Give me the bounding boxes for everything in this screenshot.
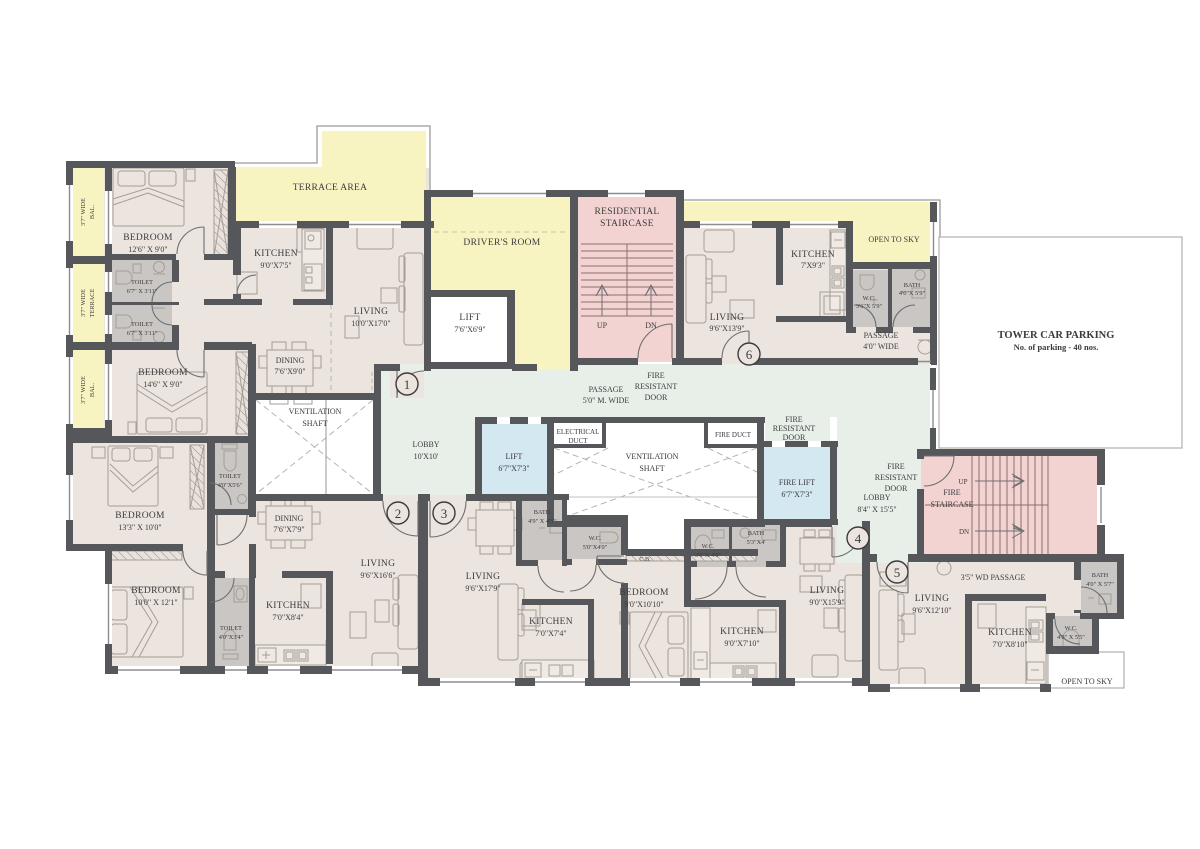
svg-text:1: 1: [404, 377, 411, 392]
svg-text:12'6" X 9'0": 12'6" X 9'0": [128, 245, 167, 254]
svg-text:9'0"X7'10": 9'0"X7'10": [724, 639, 759, 648]
svg-text:W.C.: W.C.: [589, 535, 602, 542]
svg-text:3'7" WIDE: 3'7" WIDE: [80, 289, 87, 317]
svg-text:BATH: BATH: [534, 509, 551, 516]
svg-text:9'6"X17'9": 9'6"X17'9": [465, 584, 500, 593]
svg-text:BATH: BATH: [1092, 572, 1109, 579]
svg-text:DOOR: DOOR: [885, 484, 908, 493]
svg-text:4'9" X 4'5": 4'9" X 4'5": [528, 518, 556, 525]
svg-text:4'0" X 5'5": 4'0" X 5'5": [1057, 634, 1085, 641]
svg-text:LOBBY: LOBBY: [863, 493, 890, 502]
svg-text:SHAFT: SHAFT: [302, 419, 327, 428]
svg-text:9'6"X16'6": 9'6"X16'6": [360, 571, 395, 580]
svg-text:9'6"X12'10": 9'6"X12'10": [912, 606, 951, 615]
svg-text:BAL.: BAL.: [89, 204, 96, 219]
svg-text:BEDROOM: BEDROOM: [115, 511, 165, 521]
svg-text:KITCHEN: KITCHEN: [720, 627, 764, 637]
svg-text:SHAFT: SHAFT: [639, 464, 664, 473]
svg-text:UP: UP: [959, 478, 968, 486]
svg-text:DUCT: DUCT: [568, 437, 588, 445]
svg-text:W.C.: W.C.: [702, 543, 715, 550]
svg-text:KITCHEN: KITCHEN: [266, 601, 310, 611]
svg-text:C.B.: C.B.: [639, 556, 651, 563]
svg-text:DRIVER'S ROOM: DRIVER'S ROOM: [463, 238, 540, 248]
svg-text:No. of parking - 40 nos.: No. of parking - 40 nos.: [1014, 342, 1099, 352]
svg-text:7'0"X8'10": 7'0"X8'10": [992, 640, 1027, 649]
svg-text:TOILET: TOILET: [131, 279, 153, 286]
svg-text:5'0"X4'0": 5'0"X4'0": [583, 544, 608, 551]
svg-text:W.C.: W.C.: [863, 295, 876, 302]
svg-text:2: 2: [395, 506, 402, 521]
svg-text:LIVING: LIVING: [354, 307, 389, 317]
svg-text:DINING: DINING: [275, 514, 304, 523]
svg-text:7'6"X9'0": 7'6"X9'0": [274, 367, 305, 376]
svg-text:6'7" X 3'11": 6'7" X 3'11": [127, 288, 158, 295]
svg-text:3'6"X 4'0": 3'6"X 4'0": [695, 552, 722, 559]
svg-text:7'6"X6'9": 7'6"X6'9": [454, 325, 485, 334]
svg-text:LIVING: LIVING: [915, 594, 950, 604]
svg-text:DOOR: DOOR: [783, 433, 806, 442]
svg-text:6: 6: [746, 347, 753, 362]
svg-text:9'0"X15'9": 9'0"X15'9": [809, 598, 844, 607]
svg-text:LIVING: LIVING: [466, 572, 501, 582]
svg-text:RESISTANT: RESISTANT: [773, 424, 816, 433]
svg-text:DN: DN: [959, 528, 969, 536]
svg-text:VENTILATION: VENTILATION: [626, 452, 679, 461]
svg-text:TERRACE: TERRACE: [89, 289, 96, 318]
svg-text:BEDROOM: BEDROOM: [138, 368, 188, 378]
svg-text:5'3"X4': 5'3"X4': [747, 539, 766, 546]
svg-text:10'0"X17'0": 10'0"X17'0": [351, 319, 390, 328]
svg-text:4'0" WIDE: 4'0" WIDE: [863, 342, 899, 351]
svg-text:9'0"X7'5": 9'0"X7'5": [260, 261, 291, 270]
svg-text:3'6"X 5'9": 3'6"X 5'9": [856, 303, 883, 310]
svg-text:LIVING: LIVING: [710, 313, 745, 323]
svg-text:4'0"X5'6": 4'0"X5'6": [218, 482, 243, 489]
svg-text:BEDROOM: BEDROOM: [123, 233, 173, 243]
svg-text:8'4" X 15'5": 8'4" X 15'5": [857, 505, 896, 514]
svg-text:6'7"X7'3": 6'7"X7'3": [498, 464, 529, 473]
svg-text:4'0"X 5'9": 4'0"X 5'9": [899, 290, 926, 297]
svg-text:10'0" X 12'1": 10'0" X 12'1": [134, 598, 177, 607]
svg-text:BATH: BATH: [904, 282, 921, 289]
svg-text:3'7" WIDE: 3'7" WIDE: [80, 376, 87, 404]
svg-text:4: 4: [855, 531, 862, 546]
svg-text:OPEN TO SKY: OPEN TO SKY: [868, 235, 919, 244]
svg-text:FIRE DUCT: FIRE DUCT: [715, 431, 752, 439]
svg-text:KITCHEN: KITCHEN: [988, 628, 1032, 638]
svg-text:KITCHEN: KITCHEN: [791, 250, 835, 260]
svg-text:LIFT: LIFT: [459, 313, 480, 323]
svg-text:RESISTANT: RESISTANT: [875, 473, 918, 482]
svg-text:UP: UP: [597, 321, 608, 330]
svg-text:DINING: DINING: [276, 356, 305, 365]
svg-text:DOOR: DOOR: [645, 393, 668, 402]
svg-text:TOILET: TOILET: [220, 625, 242, 632]
svg-text:STAIRCASE: STAIRCASE: [600, 219, 654, 229]
svg-text:BATH: BATH: [748, 530, 765, 537]
svg-text:PASSAGE: PASSAGE: [864, 331, 899, 340]
svg-text:KITCHEN: KITCHEN: [529, 617, 573, 627]
svg-text:FIRE: FIRE: [887, 462, 904, 471]
svg-text:6'7" X 3'11": 6'7" X 3'11": [127, 330, 158, 337]
svg-text:LIFT: LIFT: [506, 452, 523, 461]
svg-text:3: 3: [441, 506, 448, 521]
svg-text:10'X10': 10'X10': [414, 452, 439, 461]
svg-text:RESISTANT: RESISTANT: [635, 382, 678, 391]
svg-text:13'3" X 10'0": 13'3" X 10'0": [118, 523, 161, 532]
svg-text:3'5" WD PASSAGE: 3'5" WD PASSAGE: [961, 573, 1026, 582]
svg-text:BEDROOM: BEDROOM: [619, 588, 669, 598]
svg-text:5'0" M. WIDE: 5'0" M. WIDE: [583, 396, 630, 405]
svg-text:FIRE LIFT: FIRE LIFT: [779, 478, 815, 487]
svg-text:TOILET: TOILET: [219, 473, 241, 480]
svg-text:DN: DN: [645, 321, 657, 330]
svg-text:PASSAGE: PASSAGE: [589, 385, 624, 394]
svg-text:5: 5: [894, 565, 901, 580]
svg-text:4'0" X 5'7": 4'0" X 5'7": [1086, 581, 1114, 588]
svg-text:OPEN TO SKY: OPEN TO SKY: [1061, 677, 1112, 686]
svg-text:4'0"X3'4": 4'0"X3'4": [219, 634, 244, 641]
svg-text:7'6"X7'9": 7'6"X7'9": [273, 525, 304, 534]
svg-text:BAL.: BAL.: [89, 382, 96, 397]
svg-text:7'X9'3": 7'X9'3": [801, 261, 825, 270]
svg-text:LIVING: LIVING: [361, 559, 396, 569]
svg-text:FIRE: FIRE: [785, 415, 802, 424]
svg-text:FIRE: FIRE: [647, 371, 664, 380]
svg-text:3'7" WIDE: 3'7" WIDE: [80, 198, 87, 226]
svg-text:9'6"X13'9": 9'6"X13'9": [709, 324, 744, 333]
svg-text:LIVING: LIVING: [810, 586, 845, 596]
svg-text:TOWER CAR PARKING: TOWER CAR PARKING: [998, 330, 1115, 341]
svg-text:9'0"X10'10": 9'0"X10'10": [624, 600, 663, 609]
svg-text:14'6" X 9'0": 14'6" X 9'0": [143, 380, 182, 389]
svg-text:RESIDENTIAL: RESIDENTIAL: [594, 207, 659, 217]
svg-text:TERRACE AREA: TERRACE AREA: [293, 183, 368, 193]
svg-text:7'0"X8'4": 7'0"X8'4": [272, 613, 303, 622]
svg-text:ELECTRICAL: ELECTRICAL: [557, 428, 600, 436]
svg-text:7'0"X7'4": 7'0"X7'4": [535, 629, 566, 638]
svg-text:STAIRCASE: STAIRCASE: [931, 500, 974, 509]
svg-text:LOBBY: LOBBY: [412, 440, 439, 449]
svg-text:TOILET: TOILET: [131, 321, 153, 328]
svg-text:FIRE: FIRE: [943, 488, 960, 497]
svg-text:BEDROOM: BEDROOM: [131, 586, 181, 596]
svg-text:KITCHEN: KITCHEN: [254, 249, 298, 259]
svg-text:VENTILATION: VENTILATION: [289, 407, 342, 416]
svg-text:W.C.: W.C.: [1065, 625, 1078, 632]
svg-text:6'7"X7'3": 6'7"X7'3": [781, 490, 812, 499]
